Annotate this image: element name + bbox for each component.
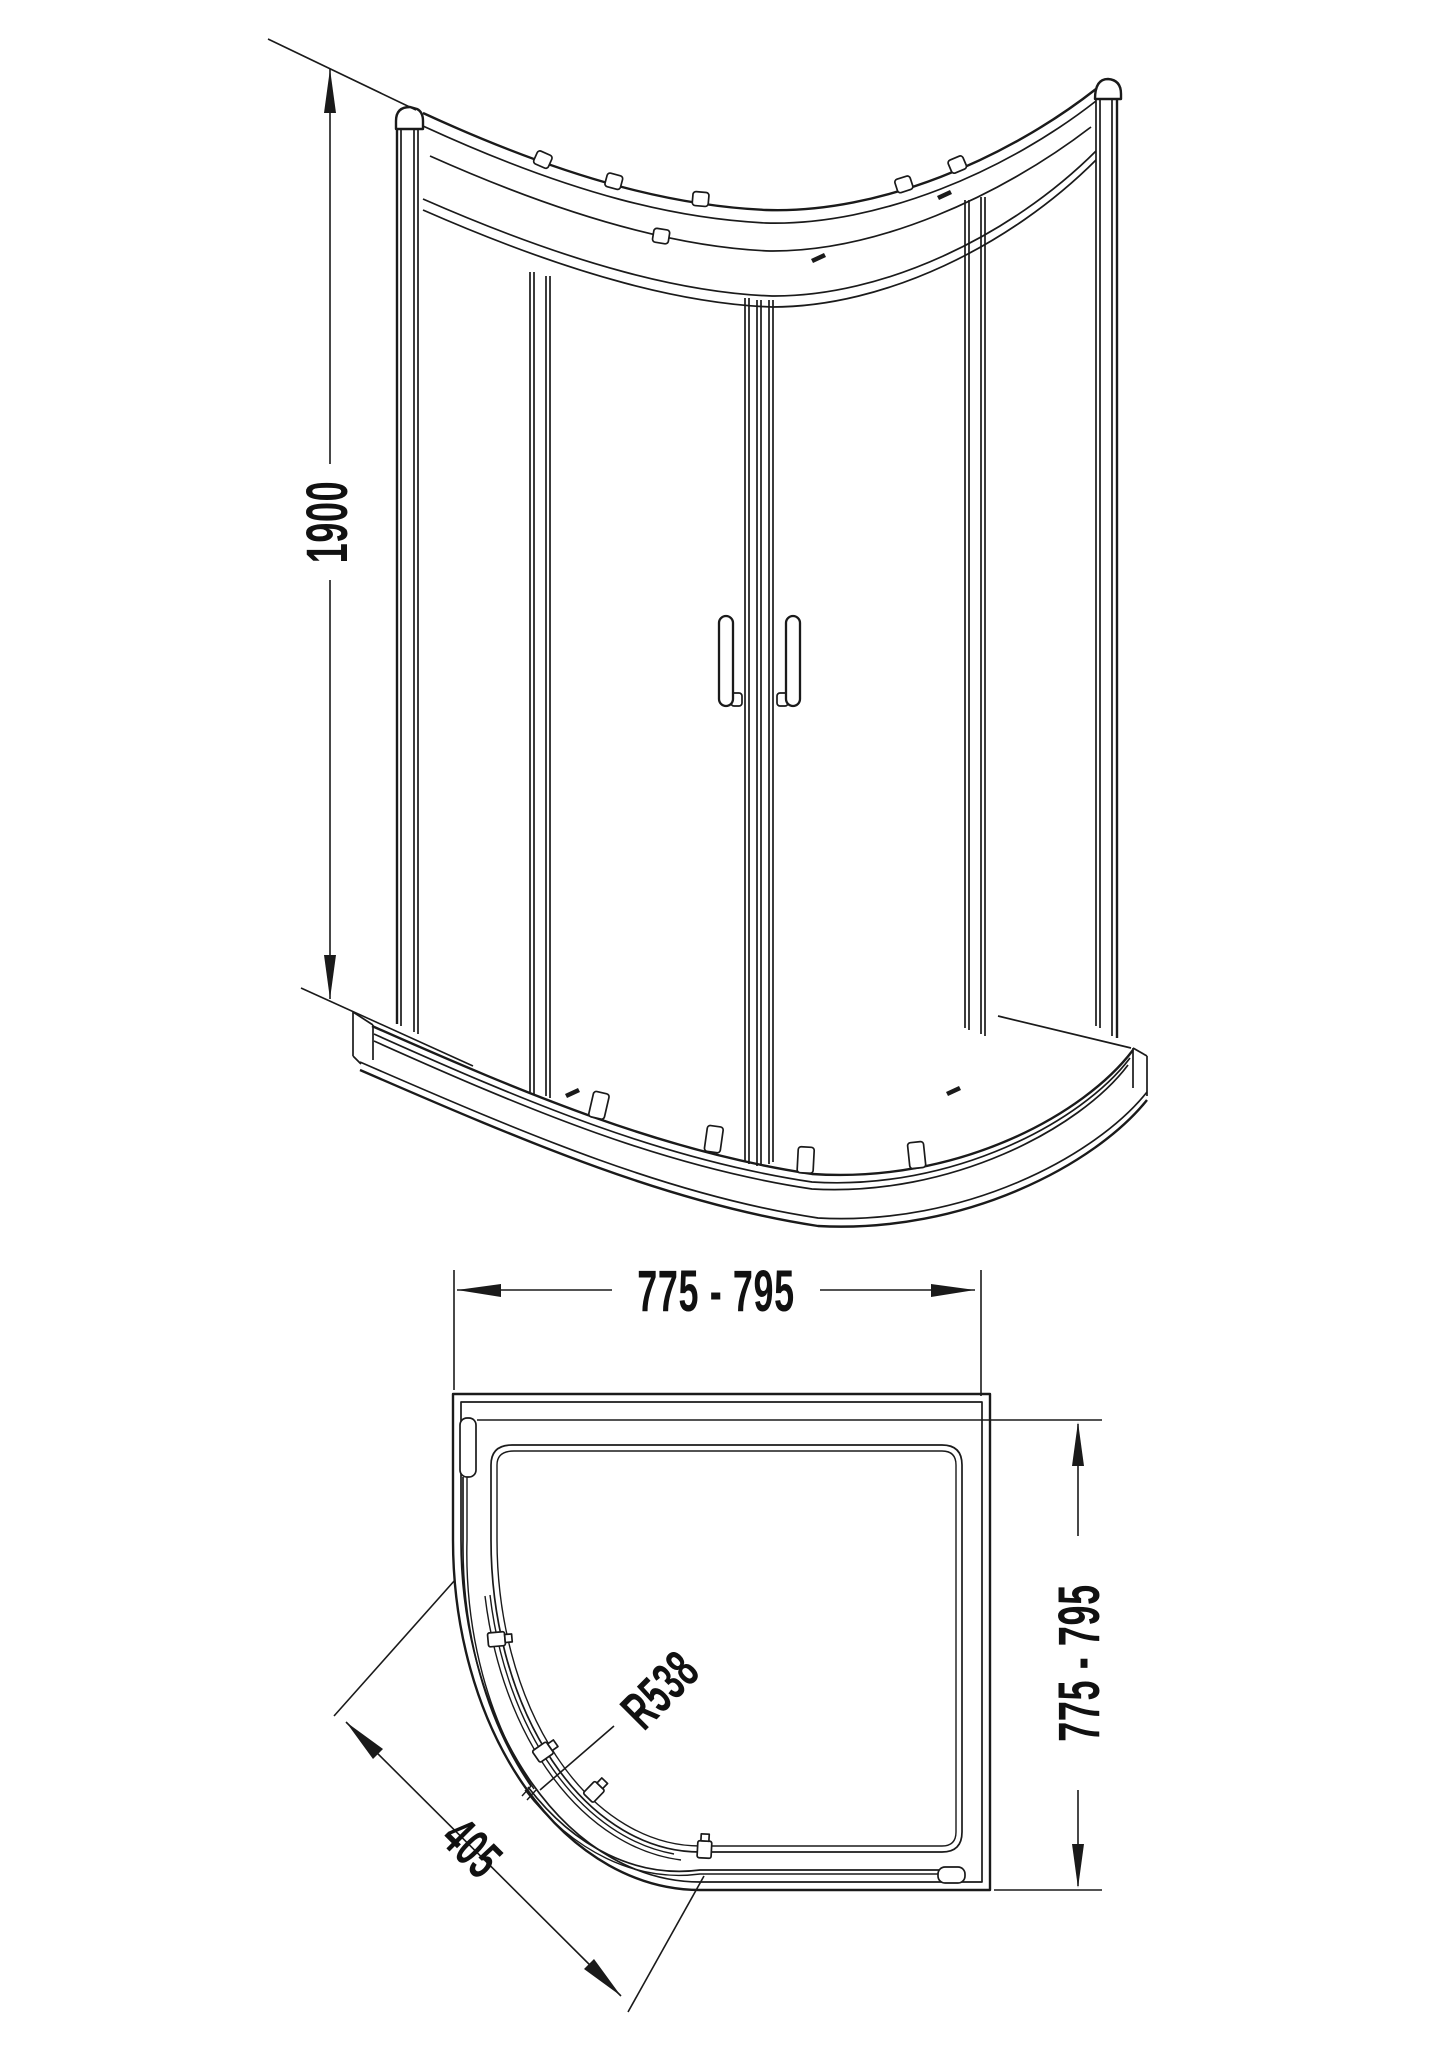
tray-rim-plan [491,1445,962,1852]
door-handle-left [719,616,733,706]
rail-curve [423,160,1096,307]
rail-clip [894,175,914,193]
tray-track-curve [374,1034,1130,1183]
arrowhead-right [931,1284,975,1297]
right-wall-profile [1095,79,1121,1038]
door-edge-cap [938,1867,965,1883]
frame-top-cap [1095,79,1121,99]
arrowhead-downright [584,1959,621,1996]
arrowhead-left [457,1284,501,1297]
rail-clip [604,172,623,190]
door-edge-cap [460,1418,476,1477]
frame-top-cap [396,107,423,129]
rail-clip [947,155,967,174]
depth-dimension-label: 775 - 795 [1047,1584,1112,1742]
door-guide-block [704,1125,723,1153]
seal-mark [946,1086,961,1096]
sliding-doors-plan [460,1418,965,1883]
rail-clip [533,150,553,169]
seal-mark [565,1088,580,1098]
roller-bracket [697,1841,712,1859]
technical-drawing-page: 1900 [0,0,1445,2045]
width-dimension: 775 - 795 [454,1259,981,1396]
extension-line [334,1580,455,1716]
extension-line [628,1876,704,2012]
door-handle-right [786,616,800,706]
rail-clip [652,228,670,244]
sliding-doors-elevation [530,197,985,1166]
rim-outer [491,1445,962,1852]
rail-curve [423,101,1096,223]
door-guide-block [907,1141,926,1169]
tray-track-curve [372,1026,1133,1175]
door-span-dimension: 405 [334,1580,704,2012]
height-dimension: 1900 [268,39,473,1066]
depth-dimension: 775 - 795 [477,1420,1112,1890]
seal-mark [937,190,952,200]
roller-bracket-notch [701,1834,709,1841]
rail-curve [430,127,1091,251]
outline-outer [453,1394,990,1890]
tray-outline-plan [453,1394,990,1890]
seal-mark [811,253,826,263]
roller-bracket [487,1632,505,1647]
door-guide-block [588,1091,609,1120]
height-dimension-label: 1900 [295,481,360,563]
rail-curve [423,89,1096,210]
arrowhead-upleft [346,1722,383,1759]
shower-enclosure-drawing: 1900 [0,0,1445,2045]
left-wall-profile [396,107,423,1034]
extension-line [301,988,473,1066]
arrowhead-down [1072,1844,1084,1888]
tray-front-edge [360,1070,1147,1227]
top-curved-rail [423,89,1096,307]
outline-inner [461,1402,982,1882]
arrowhead-up [324,69,336,113]
arrowhead-up [1072,1422,1084,1466]
extension-line [268,39,416,110]
radius-dimension-label: R538 [609,1639,711,1741]
plan-view: 775 - 795 775 - 795 405 R538 [334,1259,1112,2012]
shower-tray-elevation [353,1012,1147,1227]
tray-back-edge [998,1016,1131,1048]
arrowhead-down [324,955,336,999]
rail-clip [692,191,709,206]
front-elevation-view: 1900 [268,39,1147,1227]
radius-dimension: R538 [540,1639,711,1790]
roller-bracket-notch [505,1634,513,1643]
tray-right-end [1133,1048,1147,1096]
door-guide-block [797,1147,814,1174]
width-dimension-label: 775 - 795 [637,1259,795,1324]
